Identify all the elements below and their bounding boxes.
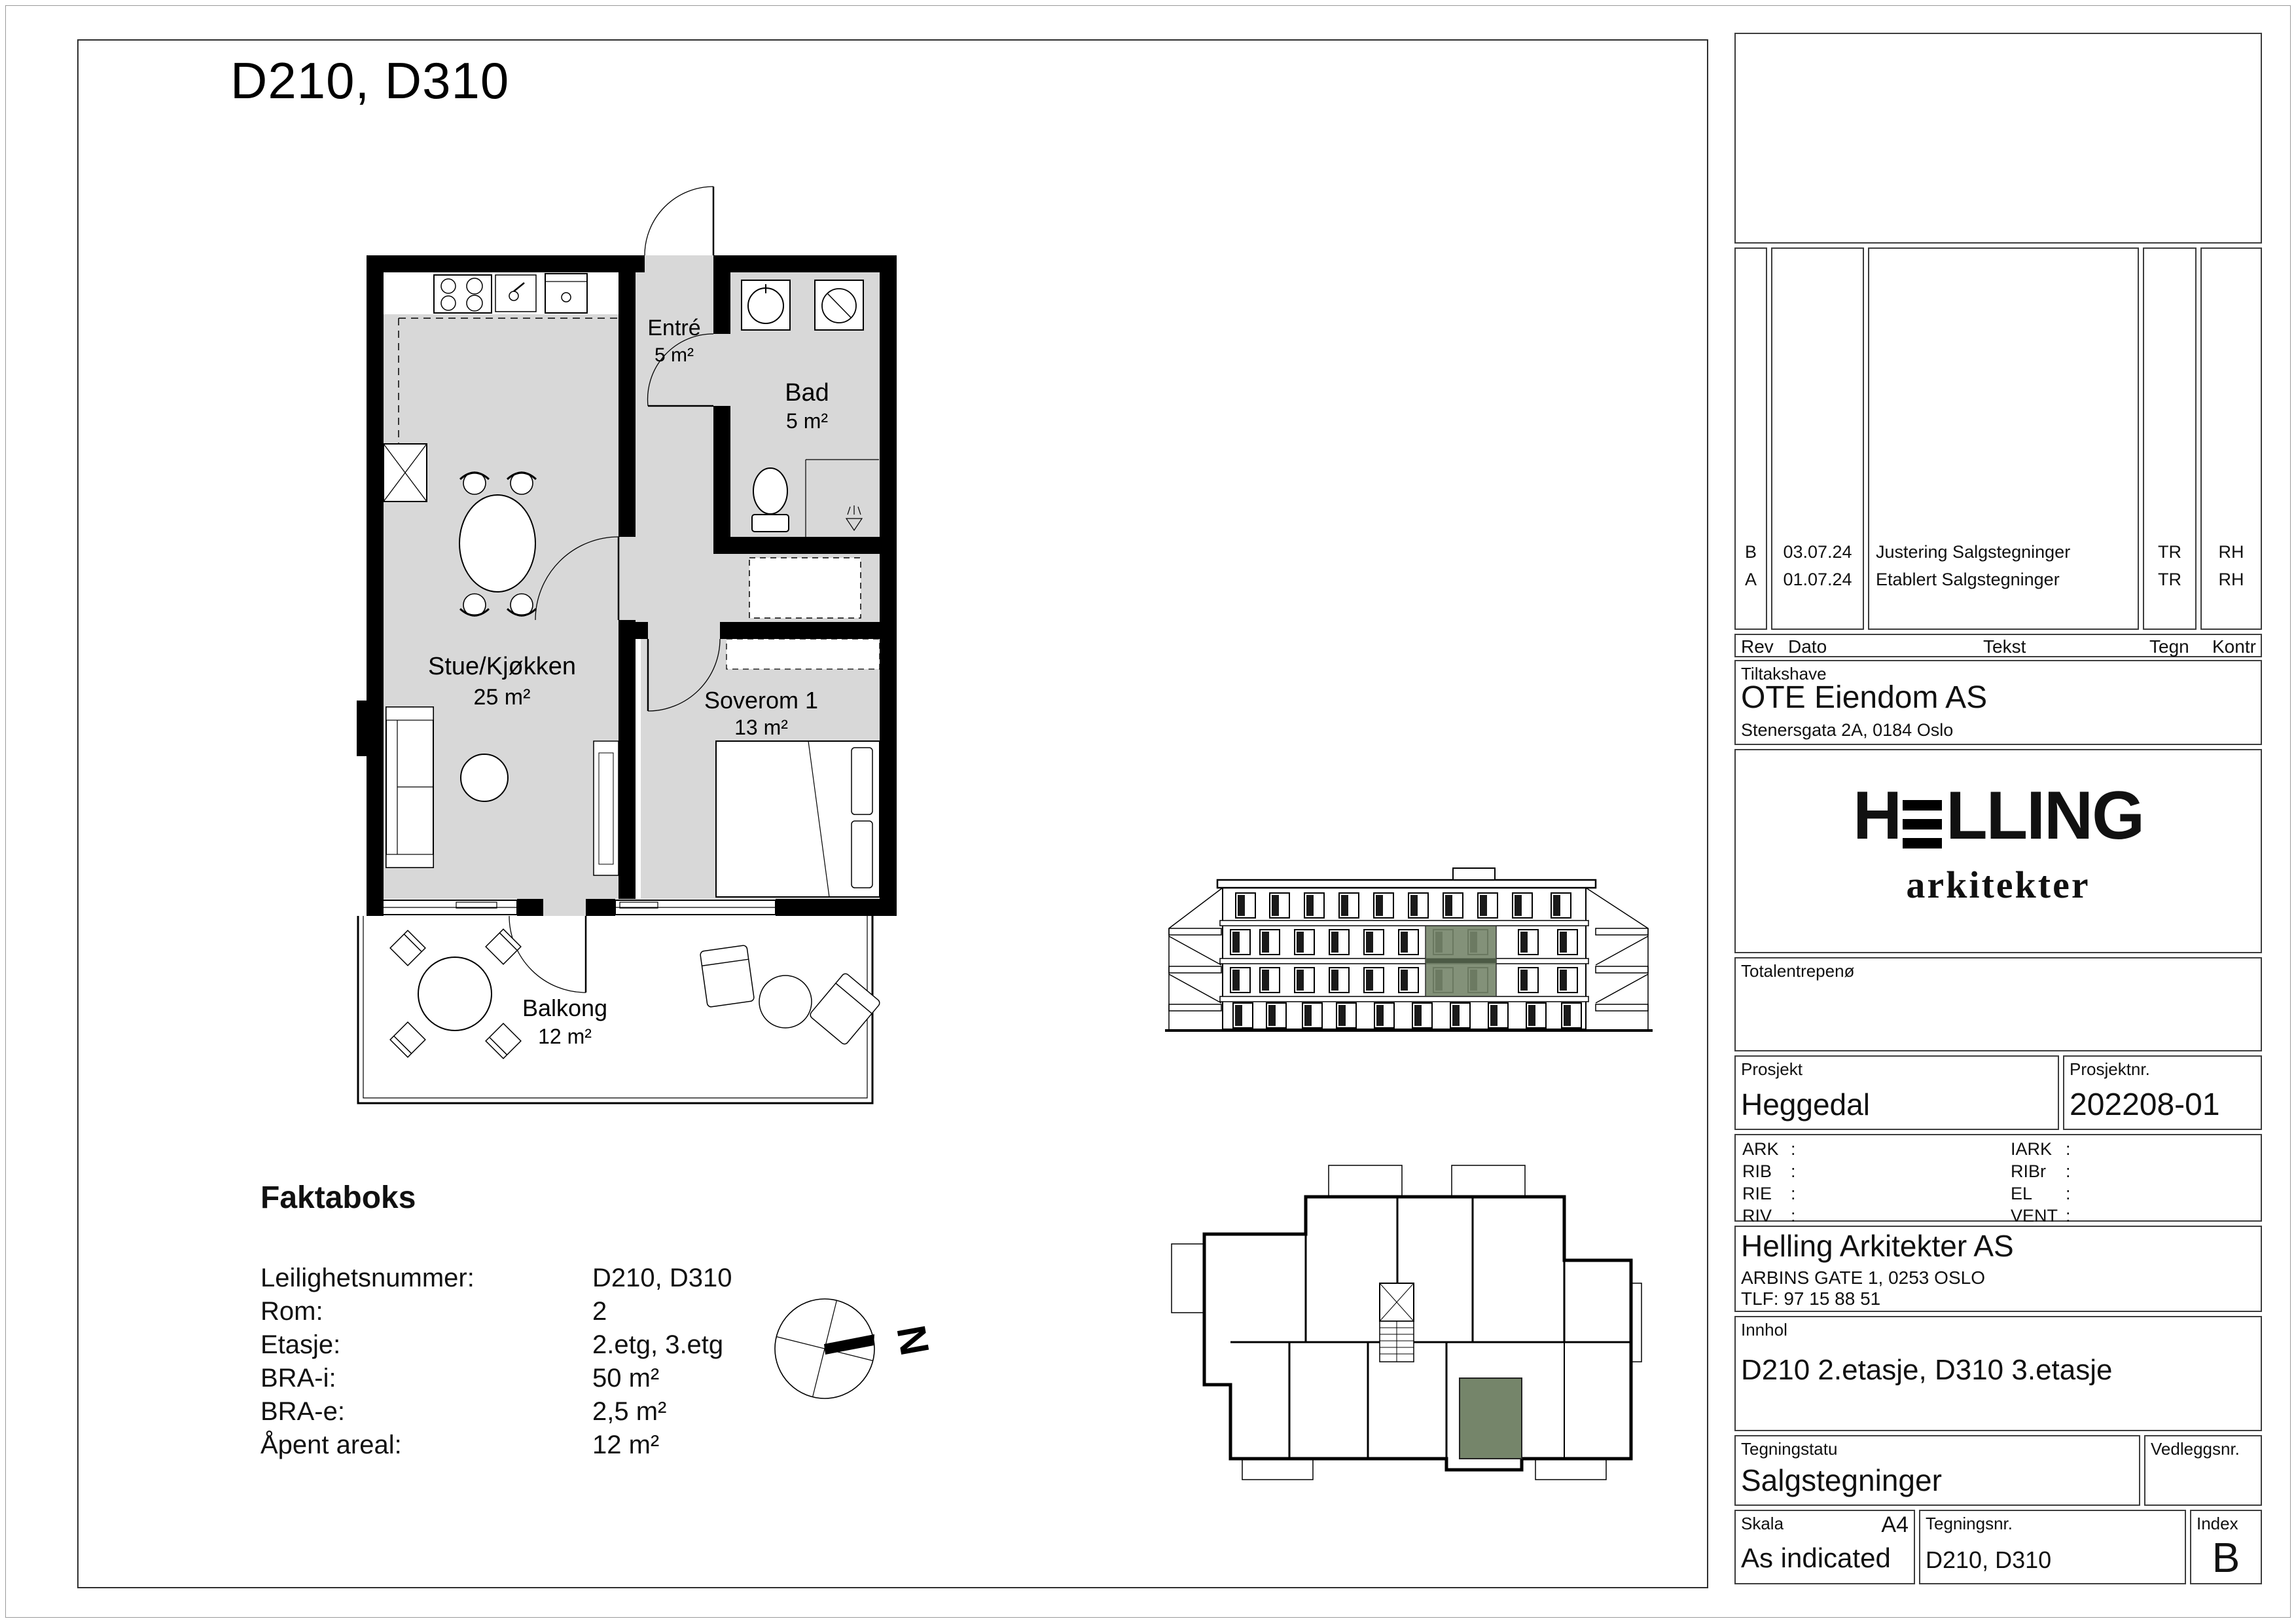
logo-subtitle: arkitekter <box>1736 863 2261 907</box>
sheet-title: D210, D310 <box>230 51 509 111</box>
room-area-balkong: 12 m² <box>538 1025 592 1048</box>
faktaboks-heading: Faktaboks <box>260 1180 416 1216</box>
fakta-row: Åpent areal:12 m² <box>260 1431 402 1460</box>
helling-logo-box: H LLING arkitekter <box>1734 749 2262 953</box>
toilet <box>752 468 789 532</box>
elevation-balcony-left <box>1169 888 1223 1029</box>
balcony-table-chairs <box>390 929 521 1059</box>
innhold-box: Innhol D210 2.etasje, D310 3.etasje <box>1734 1316 2262 1431</box>
wardrobe <box>726 639 880 669</box>
bed <box>716 741 880 897</box>
rev-col-tegn: TR TR <box>2143 247 2197 630</box>
rev-col-tekst: Justering Salgstegninger Etablert Salgst… <box>1868 247 2139 630</box>
vedleggsnr-box: Vedleggsnr. <box>2144 1435 2262 1506</box>
tegningstatus-box: Tegningstatu Salgstegninger <box>1734 1435 2140 1506</box>
index-box: Index B <box>2190 1510 2262 1584</box>
north-needle <box>824 1334 874 1355</box>
room-label-balkong: Balkong <box>522 994 607 1021</box>
rev-col-dato: 03.07.24 01.07.24 <box>1771 247 1864 630</box>
room-area-bad: 5 m² <box>786 409 828 433</box>
room-label-soverom: Soverom 1 <box>704 687 818 714</box>
tegningstatus-value: Salgstegninger <box>1741 1463 1942 1498</box>
keyplan-stair-core <box>1380 1283 1414 1362</box>
sofa <box>386 707 433 867</box>
keyplan-highlight-unit <box>1460 1378 1522 1459</box>
fakta-row: BRA-e:2,5 m² <box>260 1397 345 1427</box>
room-label-stue: Stue/Kjøkken <box>428 653 576 680</box>
fakta-row: Rom:2 <box>260 1297 323 1326</box>
client-address: Stenersgata 2A, 0184 Oslo <box>1741 720 1953 740</box>
drawing-sheet: D210, D310 <box>0 0 2296 1623</box>
tegningsnr-box: Tegningsnr. D210, D310 <box>1919 1510 2186 1584</box>
prosjekt-value: Heggedal <box>1741 1087 1870 1122</box>
totalentreprenor-box: Totalentrepenø <box>1734 957 2262 1051</box>
prosjektnr-value: 202208-01 <box>2070 1087 2220 1123</box>
skala-box: Skala A4 As indicated <box>1734 1510 1915 1584</box>
arkitekt-address: ARBINS GATE 1, 0253 OSLO <box>1741 1267 1985 1288</box>
room-label-bad: Bad <box>785 379 829 407</box>
prosjektnr-box: Prosjektnr. 202208-01 <box>2063 1055 2262 1130</box>
side-table <box>461 754 508 801</box>
paper-size: A4 <box>1881 1512 1909 1538</box>
tiltakshaver-box: Tiltakshave OTE Eiendom AS Stenersgata 2… <box>1734 660 2262 745</box>
north-compass: N <box>759 1273 936 1424</box>
room-area-soverom: 13 m² <box>734 716 788 739</box>
prosjekt-box: Prosjekt Heggedal <box>1734 1055 2059 1130</box>
balcony-lounge <box>700 945 881 1046</box>
balcony-door <box>509 916 586 993</box>
arkitekt-box: Helling Arkitekter AS ARBINS GATE 1, 025… <box>1734 1226 2262 1312</box>
elevation-balcony-right <box>1586 888 1648 1029</box>
north-letter: N <box>888 1322 936 1359</box>
floor-plan: Entré 5 m² Bad 5 m² Stue/Kjøkken 25 m² S… <box>357 172 900 1110</box>
helling-logo: H LLING <box>1736 782 2261 850</box>
rev-col-kontr: RH RH <box>2200 247 2262 630</box>
room-label-entre: Entré <box>647 316 700 340</box>
room-area-stue: 25 m² <box>474 685 531 710</box>
logo-e-bars-icon <box>1903 800 1942 848</box>
tegningsnr-value: D210, D310 <box>1926 1546 2051 1574</box>
innhold-value: D210 2.etasje, D310 3.etasje <box>1741 1354 2113 1387</box>
keyplan-outline <box>1204 1197 1631 1470</box>
arkitekt-name: Helling Arkitekter AS <box>1741 1228 2014 1264</box>
rev-header-row: Rev Dato Tekst Tegn Kontr <box>1734 634 2262 657</box>
fakta-row: Leilighetsnummer:D210, D310 <box>260 1264 475 1293</box>
room-area-entre: 5 m² <box>655 344 694 366</box>
window-bedroom <box>615 900 776 915</box>
arkitekt-phone: TLF: 97 15 88 51 <box>1741 1288 1880 1309</box>
consultants-box: ARK:RIB:RIE:RIV: IARK:RIBr:EL:VENT: <box>1734 1134 2262 1222</box>
index-value: B <box>2191 1533 2261 1582</box>
entrance-door <box>645 187 713 255</box>
fakta-row: Etasje:2.etg, 3.etg <box>260 1330 340 1360</box>
building-elevation <box>1165 864 1653 1038</box>
washing-machine <box>815 280 863 330</box>
titleblock-empty-top <box>1734 33 2262 244</box>
window-living <box>383 900 517 915</box>
client-name: OTE Eiendom AS <box>1741 680 1987 716</box>
fakta-row: BRA-i:50 m² <box>260 1364 336 1393</box>
bath-sink <box>742 280 790 330</box>
skala-value: As indicated <box>1741 1542 1891 1574</box>
tv-bench <box>594 741 619 875</box>
hall-closet <box>749 558 861 618</box>
rev-col-rev: B A <box>1734 247 1767 630</box>
key-plan <box>1145 1126 1643 1483</box>
